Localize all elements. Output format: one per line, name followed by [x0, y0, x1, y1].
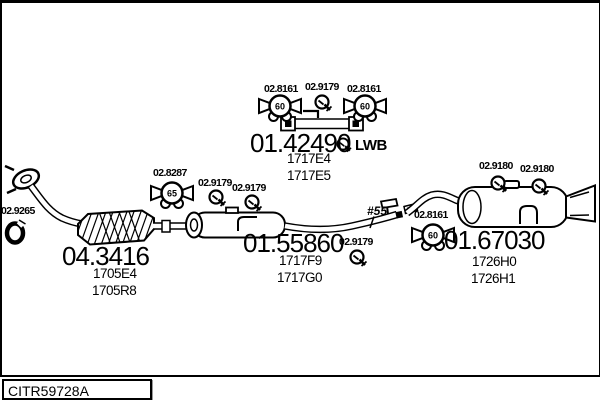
fitting-label: 02.8287	[153, 168, 187, 179]
fitting-label: 02.9179	[198, 178, 232, 189]
fitting-label: 02.9179	[305, 82, 339, 93]
fitting-label: 02.9179	[232, 183, 266, 194]
drawing-code: CITR59728A	[8, 383, 89, 399]
front-downpipe	[31, 186, 82, 224]
clamp-icon	[210, 191, 226, 207]
oe-ref: 1717E5	[287, 169, 331, 183]
clamp-icon	[316, 96, 332, 112]
exhaust-line-art: 60 60 65 60	[0, 0, 600, 400]
svg-text:65: 65	[167, 188, 177, 198]
clamp-icon	[351, 251, 367, 267]
footer-divider	[0, 375, 600, 377]
oe-ref: 1717G0	[277, 271, 322, 285]
oe-ref: 1726H1	[471, 272, 515, 286]
fitting-label: 02.8161	[414, 210, 448, 221]
fitting-label: 02.9180	[520, 164, 554, 175]
oe-ref: 1717E4	[287, 152, 331, 166]
fitting-label: 02.9179	[339, 237, 373, 248]
svg-text:60: 60	[428, 230, 438, 240]
exhaust-parts-diagram: 60 60 65 60	[0, 0, 600, 400]
oe-ref: 1705E4	[93, 267, 137, 281]
oe-ref: 1717F9	[279, 254, 322, 268]
fitting-label: 02.9265	[1, 206, 35, 217]
drawing-code-box: CITR59728A	[2, 379, 152, 400]
clamp-icon	[246, 196, 262, 212]
svg-text:60: 60	[360, 101, 370, 111]
part-number: 01.67030	[444, 227, 544, 253]
joint-ref-label: #55	[367, 205, 387, 217]
fitting-label: 02.8161	[347, 84, 381, 95]
variant-label: LWB	[355, 138, 387, 153]
rear-muffler	[458, 181, 568, 227]
oe-ref: 1705R8	[92, 284, 136, 298]
fitting-label: 02.8161	[264, 84, 298, 95]
svg-text:60: 60	[275, 101, 285, 111]
oe-ref: 1726H0	[472, 255, 516, 269]
rubber-mount-icon: 65	[151, 183, 193, 209]
clamp-ring-icon	[7, 220, 26, 243]
fitting-label: 02.9180	[479, 161, 513, 172]
rear-tailpipe	[566, 186, 595, 222]
